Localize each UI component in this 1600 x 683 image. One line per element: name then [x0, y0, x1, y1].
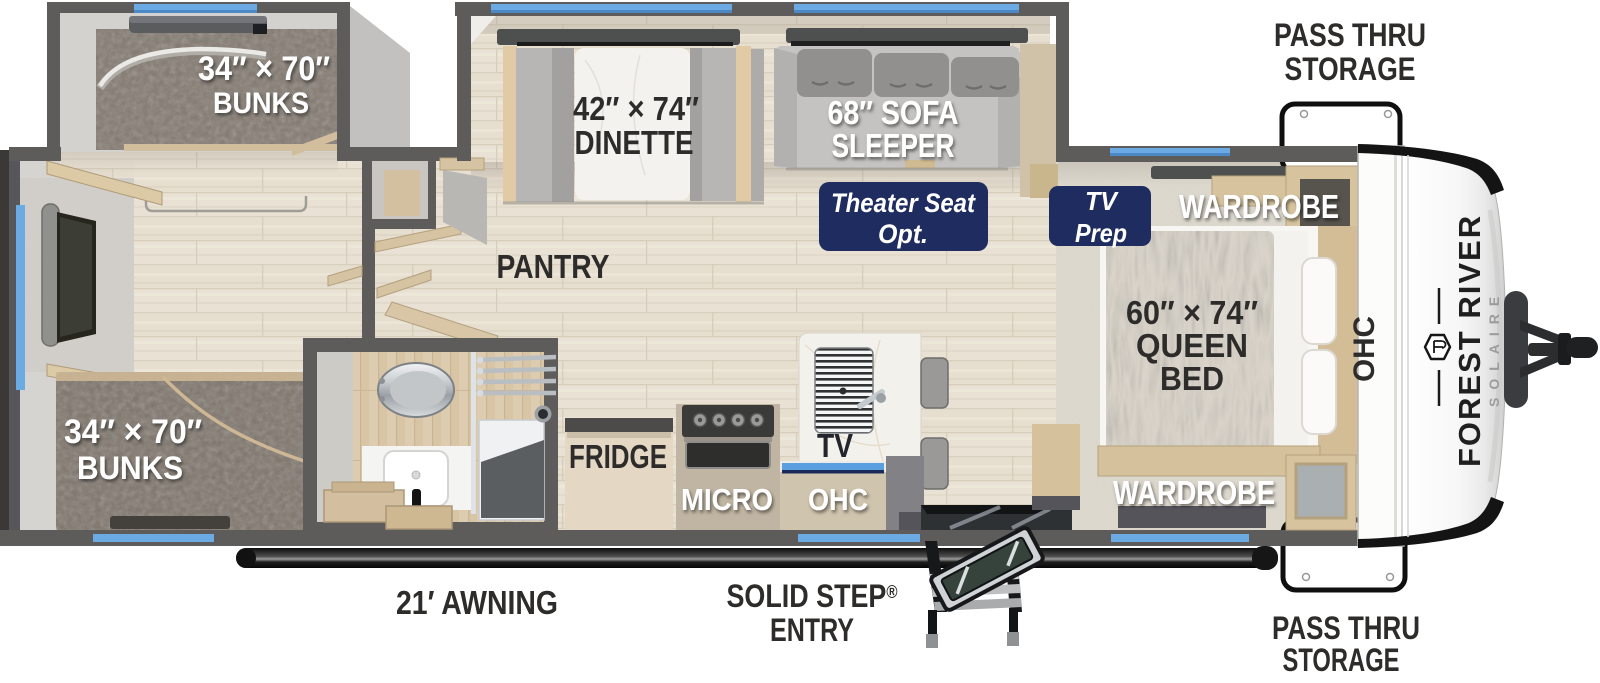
svg-text:68″ SOFA: 68″ SOFA: [828, 94, 959, 131]
svg-text:BUNKS: BUNKS: [77, 450, 183, 486]
svg-text:STORAGE: STORAGE: [1285, 51, 1416, 87]
svg-text:60″ × 74″: 60″ × 74″: [1126, 294, 1258, 331]
svg-text:STORAGE: STORAGE: [1283, 642, 1400, 678]
svg-text:SLEEPER: SLEEPER: [832, 127, 955, 164]
svg-text:WARDROBE: WARDROBE: [1179, 188, 1339, 225]
svg-text:TV: TV: [1085, 186, 1120, 216]
svg-text:MICRO: MICRO: [681, 482, 773, 517]
svg-text:FRIDGE: FRIDGE: [569, 438, 667, 475]
svg-text:ENTRY: ENTRY: [770, 612, 854, 648]
svg-text:OHC: OHC: [808, 482, 868, 517]
svg-text:21′ AWNING: 21′ AWNING: [396, 584, 558, 621]
svg-text:BED: BED: [1160, 360, 1224, 397]
svg-text:Prep: Prep: [1075, 218, 1127, 248]
svg-text:FOREST RIVER: FOREST RIVER: [1452, 214, 1487, 467]
svg-text:PASS THRU: PASS THRU: [1274, 17, 1426, 53]
svg-text:PANTRY: PANTRY: [497, 248, 610, 285]
svg-text:WARDROBE: WARDROBE: [1113, 474, 1275, 511]
svg-text:PASS THRU: PASS THRU: [1272, 610, 1420, 646]
svg-text:OHC: OHC: [1348, 316, 1381, 382]
svg-text:42″ × 74″: 42″ × 74″: [573, 90, 699, 127]
svg-text:BUNKS: BUNKS: [213, 87, 309, 120]
svg-text:QUEEN: QUEEN: [1136, 327, 1248, 364]
svg-text:TV: TV: [817, 427, 853, 464]
svg-text:DINETTE: DINETTE: [575, 124, 694, 161]
svg-text:SOLID STEP®: SOLID STEP®: [727, 578, 898, 614]
svg-text:34″ × 70″: 34″ × 70″: [198, 50, 330, 88]
svg-text:Theater Seat: Theater Seat: [831, 188, 976, 218]
svg-text:34″ × 70″: 34″ × 70″: [64, 413, 202, 451]
svg-text:SOLAIRE: SOLAIRE: [1486, 289, 1502, 407]
svg-text:Opt.: Opt.: [878, 219, 928, 249]
